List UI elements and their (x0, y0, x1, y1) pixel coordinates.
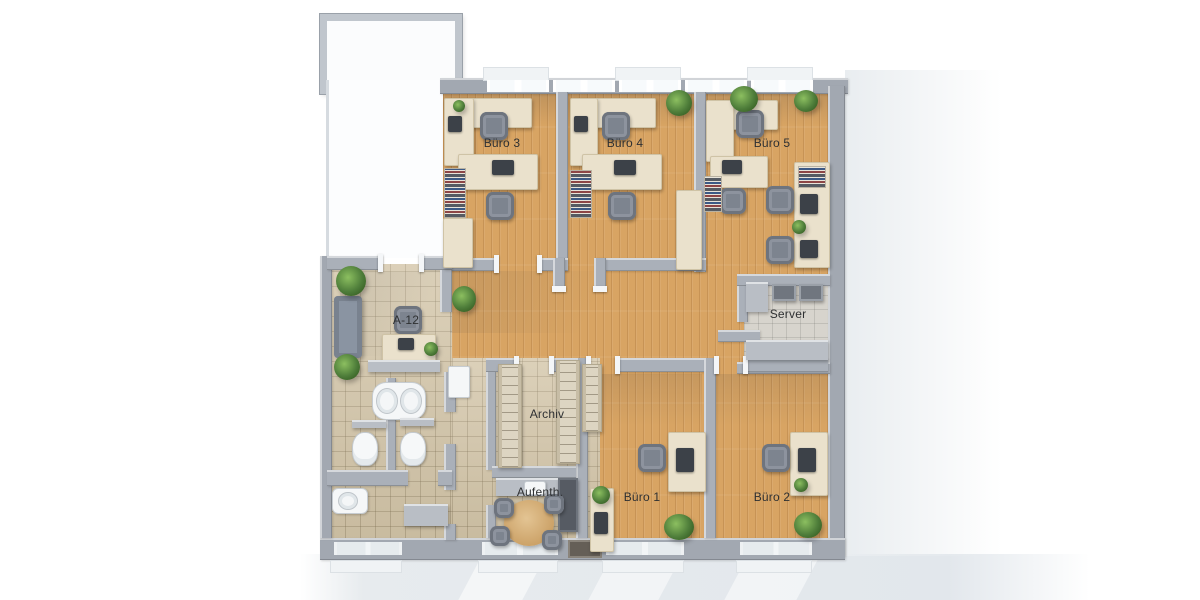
office-chair (766, 186, 794, 214)
reception-counter (368, 360, 440, 372)
office-chair (608, 192, 636, 220)
room-label-buero2: Büro 2 (732, 490, 812, 504)
door-frame (593, 286, 607, 292)
server-rack (799, 284, 823, 301)
door-frame (549, 356, 554, 374)
plant (794, 512, 822, 538)
window-sill (747, 67, 813, 81)
shelf (400, 418, 434, 426)
wall-archiv-west (486, 372, 496, 470)
binder-stack (798, 166, 826, 188)
office-chair (720, 188, 746, 214)
wall-cabinet (448, 366, 470, 398)
monitor (800, 194, 818, 214)
binder-shelf (704, 176, 722, 212)
binder-shelf (444, 168, 466, 218)
wall-wc-mid (438, 470, 452, 486)
cabinet (676, 190, 702, 270)
plant (730, 86, 758, 112)
window-sill (615, 67, 681, 81)
wall-wc-east (444, 524, 456, 540)
window (606, 542, 684, 555)
office-chair (736, 110, 764, 138)
chair (542, 530, 562, 550)
plant (666, 90, 692, 116)
door-frame (552, 286, 566, 292)
window-sill (483, 67, 549, 81)
toilet (400, 432, 426, 466)
monitor (594, 512, 608, 534)
plant (794, 90, 818, 112)
cabinet (443, 218, 473, 268)
floorplan-scene: Büro 3 Büro 4 Büro 5 Server A-12 (0, 0, 1200, 600)
plant (792, 220, 806, 234)
chair (494, 498, 514, 518)
door-frame (419, 254, 424, 272)
window (740, 542, 812, 555)
monitor (448, 116, 462, 132)
laptop (398, 338, 414, 350)
wall-a12-east-stub (440, 270, 452, 312)
plant (336, 266, 366, 296)
monitor (614, 160, 636, 175)
monitor (722, 160, 742, 174)
door-frame (537, 255, 542, 273)
monitor (574, 116, 588, 132)
window-sill (478, 560, 558, 573)
chair (490, 526, 510, 546)
wall-buero1-north (618, 358, 704, 372)
plant (452, 286, 476, 312)
room-label-buero5: Büro 5 (732, 136, 812, 150)
monitor (492, 160, 514, 175)
server-counter (746, 340, 828, 360)
plant (664, 514, 694, 540)
room-label-server: Server (752, 307, 824, 321)
exterior-shade-right (845, 70, 1055, 556)
washbasin (376, 388, 398, 414)
neighbor-space (326, 80, 448, 258)
room-label-a12: A-12 (376, 313, 436, 327)
washbasin (338, 492, 358, 510)
wall-left (320, 256, 332, 538)
window (487, 80, 549, 92)
wall-divider-buero3-4 (556, 92, 568, 271)
window (553, 80, 615, 92)
window-sill (736, 560, 812, 573)
door-frame (378, 254, 383, 272)
monitor (800, 240, 818, 258)
shelf-unit (582, 364, 602, 432)
door-frame (714, 356, 719, 374)
ground-shadow (300, 554, 1090, 600)
plant (453, 100, 465, 112)
window (334, 542, 402, 555)
plant (424, 342, 438, 356)
room-label-buero3: Büro 3 (462, 136, 542, 150)
wall-buero2-north (746, 358, 828, 372)
room-label-aufenthalt: Aufenth. (505, 485, 575, 499)
office-chair (638, 444, 666, 472)
room-label-buero4: Büro 4 (585, 136, 665, 150)
room-label-archiv: Archiv (512, 407, 582, 421)
sofa (334, 296, 362, 358)
door-frame (494, 255, 499, 273)
washbasin (400, 388, 422, 414)
window (619, 80, 681, 92)
server-rack (772, 284, 796, 301)
window-sill (602, 560, 684, 573)
door-frame (615, 356, 620, 374)
office-chair (486, 192, 514, 220)
shelf (352, 420, 386, 428)
window-sill (330, 560, 402, 573)
bench (404, 504, 448, 526)
wall-wc-mid (327, 470, 408, 486)
office-chair (762, 444, 790, 472)
office-chair (766, 236, 794, 264)
toilet (352, 432, 378, 466)
plant (334, 354, 360, 380)
room-label-buero1: Büro 1 (602, 490, 682, 504)
wall-right (828, 86, 845, 556)
monitor (798, 448, 816, 472)
monitor (676, 448, 694, 472)
desk (706, 100, 734, 162)
binder-shelf (570, 170, 592, 218)
